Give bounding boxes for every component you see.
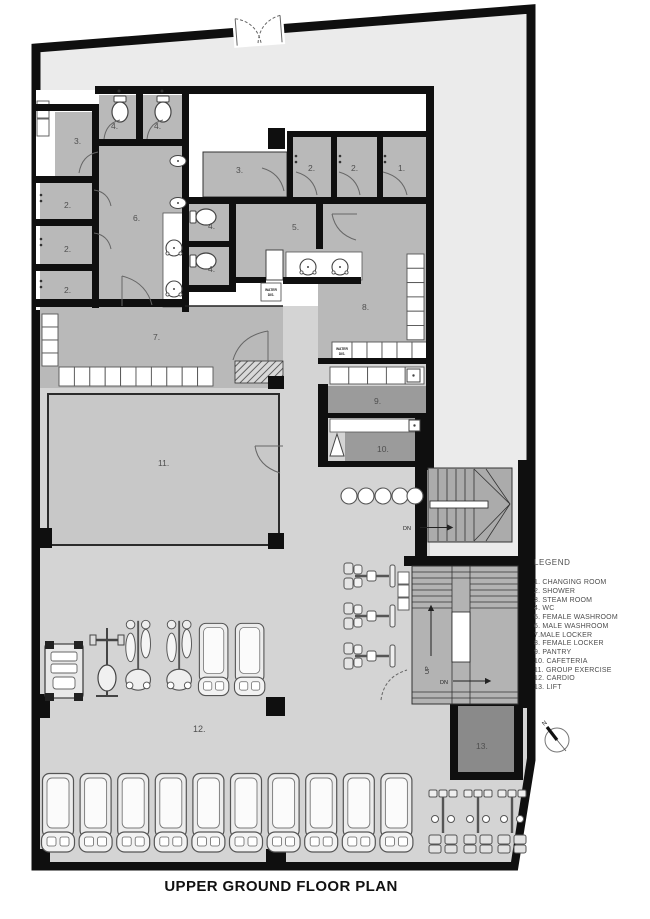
room-label-female-locker: 8. xyxy=(362,302,369,312)
water-dispenser-label: WATER xyxy=(265,288,278,292)
sink-icon xyxy=(170,198,186,209)
treadmill-icon xyxy=(267,774,300,853)
legend-heading: LEGEND xyxy=(534,558,646,567)
north-compass: N xyxy=(541,720,569,752)
room-label-shower: 2. xyxy=(64,200,71,210)
entrance-double-door xyxy=(232,12,285,48)
treadmill-icon xyxy=(305,774,338,853)
room-label-changing: 1. xyxy=(398,163,405,173)
treadmill-icon xyxy=(198,623,228,695)
sink-icon xyxy=(300,259,316,275)
water-dispenser xyxy=(261,283,281,301)
svg-text:DIS.: DIS. xyxy=(339,352,346,356)
multigym-icon xyxy=(45,641,83,701)
room-label-wc: 4. xyxy=(154,121,161,131)
stairs-upper-dn-label: DN xyxy=(403,526,411,532)
legend-item: 1. CHANGING ROOM xyxy=(534,579,646,588)
room-label-male-locker: 7. xyxy=(153,332,160,342)
treadmill-icon xyxy=(79,774,112,853)
room-label-steam: 3. xyxy=(74,136,81,146)
stairs-lower: UP DN xyxy=(412,566,518,704)
north-label: N xyxy=(541,720,548,727)
legend: LEGEND 1. CHANGING ROOM 2. SHOWER 3. STE… xyxy=(534,558,646,693)
room-label-cafeteria: 10. xyxy=(377,444,389,454)
floor-plan-page: DN UP DN xyxy=(0,0,650,919)
room-label-cardio: 12. xyxy=(193,724,206,734)
treadmill-icon xyxy=(42,774,75,853)
sink-icon xyxy=(170,156,186,167)
svg-text:WATER: WATER xyxy=(336,347,349,351)
legend-item: 11. GROUP EXERCISE xyxy=(534,667,646,676)
legend-item: 7.MALE LOCKER xyxy=(534,632,646,641)
room-label-wc: 4. xyxy=(208,264,215,274)
stairs-lower-dn-label: DN xyxy=(440,680,448,686)
toilet-icon xyxy=(155,96,171,122)
legend-item: 5. FEMALE WASHROOM xyxy=(534,614,646,623)
room-label-shower: 2. xyxy=(64,285,71,295)
stools xyxy=(341,488,423,504)
plan-title: UPPER GROUND FLOOR PLAN xyxy=(36,878,526,895)
room-lift xyxy=(458,706,514,772)
treadmill-icon xyxy=(154,774,187,853)
room-label-steam: 3. xyxy=(236,165,243,175)
room-label-wc: 4. xyxy=(111,121,118,131)
room-group-exercise xyxy=(48,394,279,545)
legend-item: 4. WC xyxy=(534,605,646,614)
sink-icon xyxy=(166,240,182,256)
legend-item: 3. STEAM ROOM xyxy=(534,597,646,606)
water-dispenser-label: WATER xyxy=(336,347,349,351)
treadmill-icon xyxy=(342,774,375,853)
treadmill-icon xyxy=(192,774,225,853)
room-label-wc: 4. xyxy=(208,221,215,231)
legend-item: 10. CAFETERIA xyxy=(534,658,646,667)
room-label-lift: 13. xyxy=(476,741,488,751)
svg-text:WATER: WATER xyxy=(265,288,278,292)
room-label-pantry: 9. xyxy=(374,396,381,406)
room-label-shower: 2. xyxy=(351,163,358,173)
legend-item: 2. SHOWER xyxy=(534,588,646,597)
legend-item: 6. MALE WASHROOM xyxy=(534,623,646,632)
room-label-group-exercise: 11. xyxy=(158,458,169,468)
room-label-female-washroom: 5. xyxy=(292,222,299,232)
treadmill-icon xyxy=(380,774,413,853)
room-label-male-washroom: 6. xyxy=(133,213,140,223)
floor-plan-drawing: DN UP DN xyxy=(0,0,650,919)
legend-item: 9. PANTRY xyxy=(534,649,646,658)
room-label-shower: 2. xyxy=(64,244,71,254)
treadmill-icon xyxy=(117,774,150,853)
sink-icon xyxy=(332,259,348,275)
treadmill-icon xyxy=(230,774,263,853)
svg-text:DIS.: DIS. xyxy=(268,293,275,297)
sink-icon xyxy=(166,281,182,297)
room-label-shower: 2. xyxy=(308,163,315,173)
legend-item: 8. FEMALE LOCKER xyxy=(534,640,646,649)
toilet-icon xyxy=(112,96,128,122)
stairs-lower-up-label: UP xyxy=(425,666,431,674)
treadmill-icon xyxy=(234,623,264,695)
legend-item: 13. LIFT xyxy=(534,684,646,693)
legend-item: 12. CARDIO xyxy=(534,675,646,684)
legend-items: 1. CHANGING ROOM 2. SHOWER 3. STEAM ROOM… xyxy=(534,579,646,693)
